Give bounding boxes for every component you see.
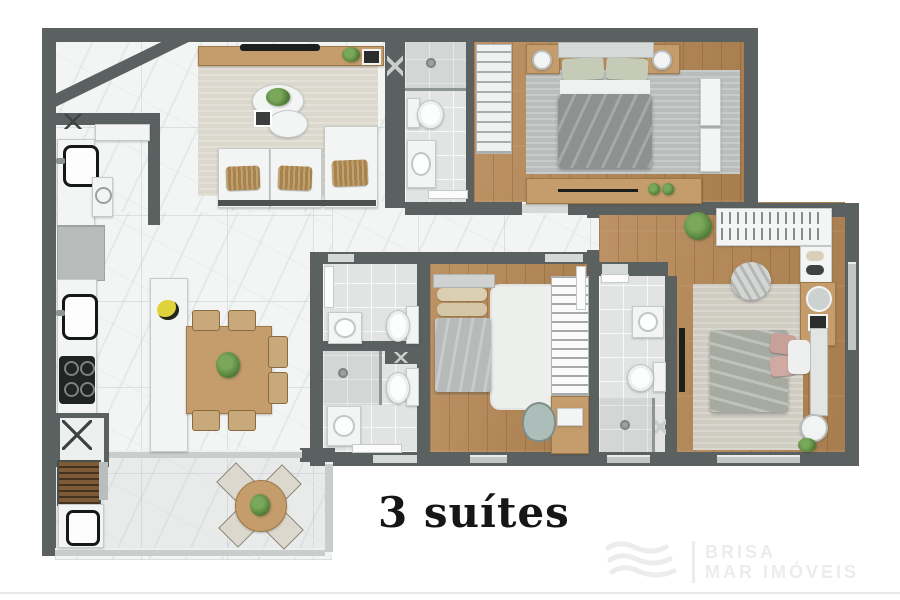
bath2a-toilet-icon	[386, 310, 410, 342]
suite2-door	[576, 266, 586, 310]
suite1-lamp-left-icon	[532, 50, 552, 70]
image-bottom-border	[0, 592, 900, 594]
bath3-shower-head-icon	[620, 420, 630, 430]
shoes-icon	[806, 251, 824, 261]
washer-drum-icon	[95, 187, 112, 204]
bath2-lower-door	[373, 455, 417, 463]
burner-3	[64, 382, 79, 397]
suite1-pillow-1	[561, 57, 604, 81]
suite1-bottom-wall-a	[405, 202, 522, 215]
bath3-right-wall	[665, 276, 677, 454]
suite3-side-window	[848, 262, 856, 350]
fruit-bowl-icon	[157, 300, 179, 320]
bath2b-toilet-icon	[386, 372, 410, 404]
bath3-toilet-icon	[627, 364, 654, 392]
balcony-wall-stub	[300, 448, 335, 462]
suite3-pouf	[731, 262, 771, 300]
dining-chair-4	[228, 410, 256, 431]
bath3-door-opening	[602, 264, 628, 274]
bath2b-shower	[323, 351, 381, 405]
barbecue-grill-icon	[57, 460, 101, 506]
suite1-dresser-handle	[558, 189, 638, 192]
burner-2	[80, 361, 95, 376]
bath2b-shower-glass	[379, 351, 382, 405]
balcony-plant-icon	[250, 494, 270, 516]
balcony-sink-icon	[66, 510, 100, 546]
sofa-cushion-1	[226, 165, 261, 190]
hall-wall-a	[587, 202, 599, 218]
fridge-x-symbol	[62, 420, 92, 450]
dining-chair-3	[192, 410, 220, 431]
top-wall	[55, 28, 758, 42]
right-wall-upper	[744, 28, 758, 216]
shaft-symbol	[387, 48, 403, 84]
suite3-hall-plant-icon	[684, 212, 712, 240]
bath3-shaft-symbol	[655, 404, 666, 450]
suite1-plant-1-icon	[648, 183, 660, 195]
bath1-suite1-wall	[466, 42, 474, 204]
kitchen-faucet-icon	[56, 310, 65, 316]
kitchen-sink-icon	[62, 294, 98, 340]
coffee-table-plant-icon	[266, 88, 290, 106]
suite1-closet	[476, 44, 512, 154]
picture-frame-icon	[362, 49, 381, 65]
bath3-toilet-tank	[653, 362, 666, 392]
suite1-headboard	[558, 42, 654, 58]
bath1-toilet-icon	[417, 100, 444, 129]
suite3-mirror-icon	[806, 286, 832, 312]
suite1-door-opening	[522, 204, 568, 213]
tv	[240, 44, 320, 51]
console-plant-icon	[342, 47, 360, 62]
suite2-pillow-2	[437, 303, 487, 316]
suite1-wardrobe-b	[700, 128, 721, 172]
bath1-shower-glass	[405, 88, 466, 91]
suite3-headboard	[810, 328, 828, 416]
watermark-divider	[692, 541, 695, 583]
sofa-cushion-3	[332, 159, 369, 186]
bookshelf-books-top	[721, 212, 825, 224]
plan-title: 3 suítes	[378, 488, 570, 537]
laundry-faucet-icon	[56, 158, 65, 164]
bath2-right-wall	[417, 252, 430, 460]
bath2b-shower-head-icon	[338, 368, 348, 378]
bath2b-basin-icon	[333, 415, 355, 437]
dining-plant-icon	[216, 352, 240, 378]
coffee-table-frame-icon	[254, 110, 272, 127]
balcony-right-glass	[325, 462, 333, 552]
dining-chair-5	[268, 336, 288, 368]
suite3-plant-icon	[798, 438, 816, 452]
bath1-door	[428, 190, 468, 199]
suite2-blanket	[435, 318, 491, 392]
dining-chair-6	[268, 372, 288, 404]
suite1-duvet	[558, 94, 652, 168]
suite2-monitor-icon	[557, 408, 583, 426]
bath1-shower	[405, 42, 466, 90]
suite2-headboard	[433, 274, 495, 288]
floor-plan-image: 3 suítes BRISA MAR IMÓVEIS	[0, 0, 900, 600]
balcony-sliding-door	[98, 450, 302, 458]
bath1-basin-icon	[411, 152, 431, 176]
dining-chair-2	[228, 310, 256, 331]
bath2-left-wall	[310, 252, 323, 460]
sofa-base	[218, 200, 376, 206]
bath3-basin-icon	[638, 312, 658, 332]
suite2-pillow-1	[437, 288, 487, 301]
coffee-table-small	[268, 110, 308, 138]
suite3-window	[717, 455, 800, 463]
suite2-desk-chair	[522, 402, 556, 442]
watermark: BRISA MAR IMÓVEIS	[604, 538, 859, 586]
bath3-window	[607, 455, 650, 463]
bookshelf-books-bottom	[721, 228, 825, 240]
suite2-door-opening	[545, 254, 583, 262]
suite1-plant-2-icon	[662, 183, 674, 195]
burner-1	[64, 361, 79, 376]
dining-chair-1	[192, 310, 220, 331]
bath2a-basin-icon	[334, 318, 356, 338]
suite3-pillow-3	[788, 340, 810, 374]
watermark-line1: BRISA	[705, 542, 859, 562]
bath2-x-symbol	[387, 352, 415, 363]
kitchen-cabinet	[57, 225, 105, 281]
suite1-wardrobe-a	[700, 78, 721, 126]
bath2-door-opening	[328, 254, 354, 262]
grill-knobs	[99, 462, 108, 500]
watermark-line2: MAR IMÓVEIS	[705, 562, 859, 582]
suite1-pillow-2	[605, 57, 648, 81]
waves-icon	[604, 538, 682, 586]
suite3-tv	[679, 328, 685, 392]
suite2-window	[470, 455, 507, 463]
burner-4	[80, 382, 95, 397]
watermark-text: BRISA MAR IMÓVEIS	[705, 542, 859, 582]
bath1-shower-head-icon	[426, 58, 436, 68]
bath2b-door	[352, 444, 402, 453]
laundry-appliance-symbol	[58, 114, 88, 129]
sofa-cushion-2	[278, 165, 313, 190]
suite2-rug	[492, 286, 556, 408]
suite1-lamp-right-icon	[652, 50, 672, 70]
bath3-door	[601, 274, 629, 283]
bath2a-door	[324, 266, 334, 308]
laundry-counter-top	[95, 124, 150, 141]
